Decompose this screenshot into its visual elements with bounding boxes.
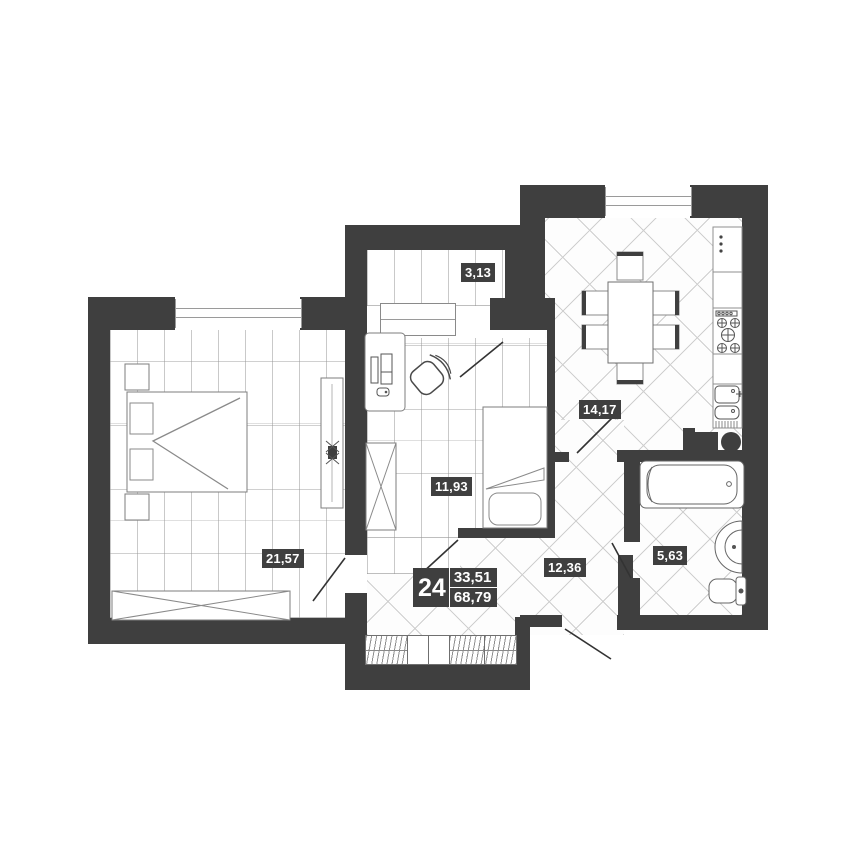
wall-bedroom-top-left — [88, 297, 175, 330]
hallway-area-label: 12,36 — [544, 558, 586, 577]
wall-hall-bottom — [345, 663, 530, 690]
bathroom-area-label: 5,63 — [653, 546, 687, 565]
wall-balcony-top — [345, 225, 520, 250]
wall-room2-bottom — [458, 528, 555, 538]
wall-entry-right — [618, 555, 633, 627]
hall-closet — [365, 635, 517, 665]
wall-bedroom-bottom — [88, 618, 367, 644]
wall-bathroom-left-upper — [624, 452, 640, 542]
unit-areas: 33,51 68,79 — [450, 568, 498, 607]
balcony-window — [380, 303, 456, 336]
wall-kitchen-top-left — [520, 185, 605, 218]
closet-section-hatched — [485, 636, 516, 664]
unit-number: 24 — [413, 568, 450, 607]
closet-section-plain — [408, 636, 429, 664]
wall-bedroom-left — [88, 297, 110, 640]
living-area-value: 33,51 — [450, 568, 498, 588]
closet-section-plain — [429, 636, 449, 664]
bedroom-floor — [110, 330, 345, 618]
bedroom-window — [175, 299, 302, 328]
kitchen-window — [605, 187, 692, 216]
bathroom-floor — [624, 455, 742, 615]
wall-right-outer — [742, 185, 768, 630]
room2-floor — [367, 338, 547, 538]
floor-plan: 21,57 11,93 3,13 14,17 12,36 5,63 24 33,… — [0, 0, 864, 864]
balcony-area-label: 3,13 — [461, 263, 495, 282]
kitchen-area-label: 14,17 — [579, 400, 621, 419]
wall-closet-right — [515, 617, 530, 675]
wall-kitchen-entry-stub — [547, 452, 569, 462]
closet-section-hatched — [366, 636, 408, 664]
room2-area-label: 11,93 — [431, 477, 472, 496]
wall-balcony-kitchen-corner — [490, 298, 555, 330]
total-area-value: 68,79 — [450, 588, 498, 607]
wall-kitchen-top-right — [690, 185, 742, 218]
bedroom-area-label: 21,57 — [262, 549, 304, 568]
closet-section-hatched — [450, 636, 485, 664]
wall-room2-kitchen-partition — [547, 330, 555, 538]
wall-bedroom-right — [345, 225, 367, 555]
wall-bathroom-bottom — [617, 615, 768, 630]
unit-info-badge: 24 33,51 68,79 — [413, 568, 497, 607]
